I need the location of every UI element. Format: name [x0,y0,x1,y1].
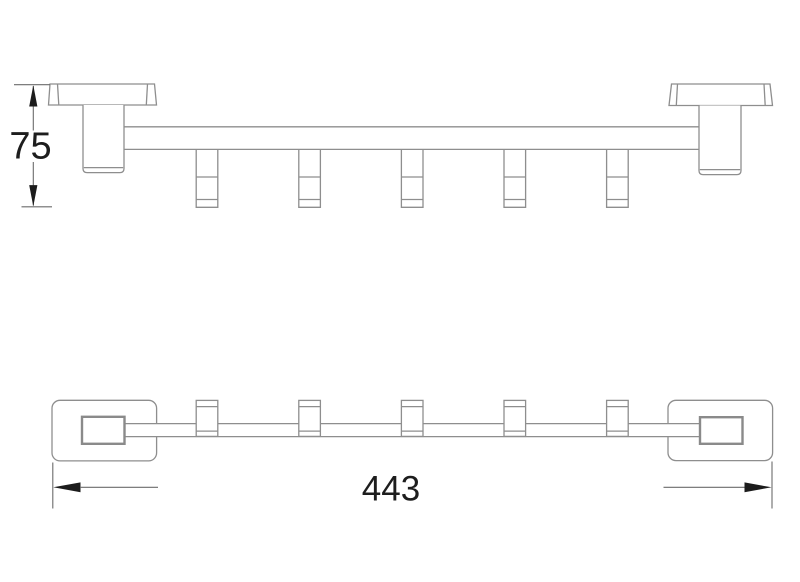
hook-1-side [196,149,218,207]
right-bracket-side [669,84,773,175]
hook-2-side [299,149,321,207]
right-post [699,106,741,175]
technical-drawing-page: 75 [0,0,800,582]
arrow-right-icon [745,482,772,492]
hook-5-side [607,149,629,207]
arrow-down-icon [29,185,37,206]
left-post-section [82,417,125,444]
width-dimension-label: 443 [362,470,420,509]
hooks-side [196,149,628,207]
height-dimension-label: 75 [9,126,51,168]
plan-view: 443 [52,400,773,508]
left-post [83,105,124,173]
hook-4-side [504,149,526,207]
left-bracket-side [49,84,157,173]
hook-3-side [401,149,423,207]
hook-1-plan [196,400,218,436]
height-dimension: 75 [9,85,52,207]
left-flange [49,84,157,105]
width-dimension: 443 [53,462,772,509]
arrow-left-icon [53,482,80,492]
arrow-up-icon [29,85,37,106]
side-view: 75 [9,84,772,207]
hook-5-plan [607,400,629,436]
hook-3-plan [401,400,423,436]
hook-2-plan [299,400,321,436]
right-flange [669,84,773,106]
right-post-section [700,417,743,444]
drawing-svg: 75 [0,0,800,582]
hook-4-plan [504,400,526,436]
rail-side [124,127,699,150]
